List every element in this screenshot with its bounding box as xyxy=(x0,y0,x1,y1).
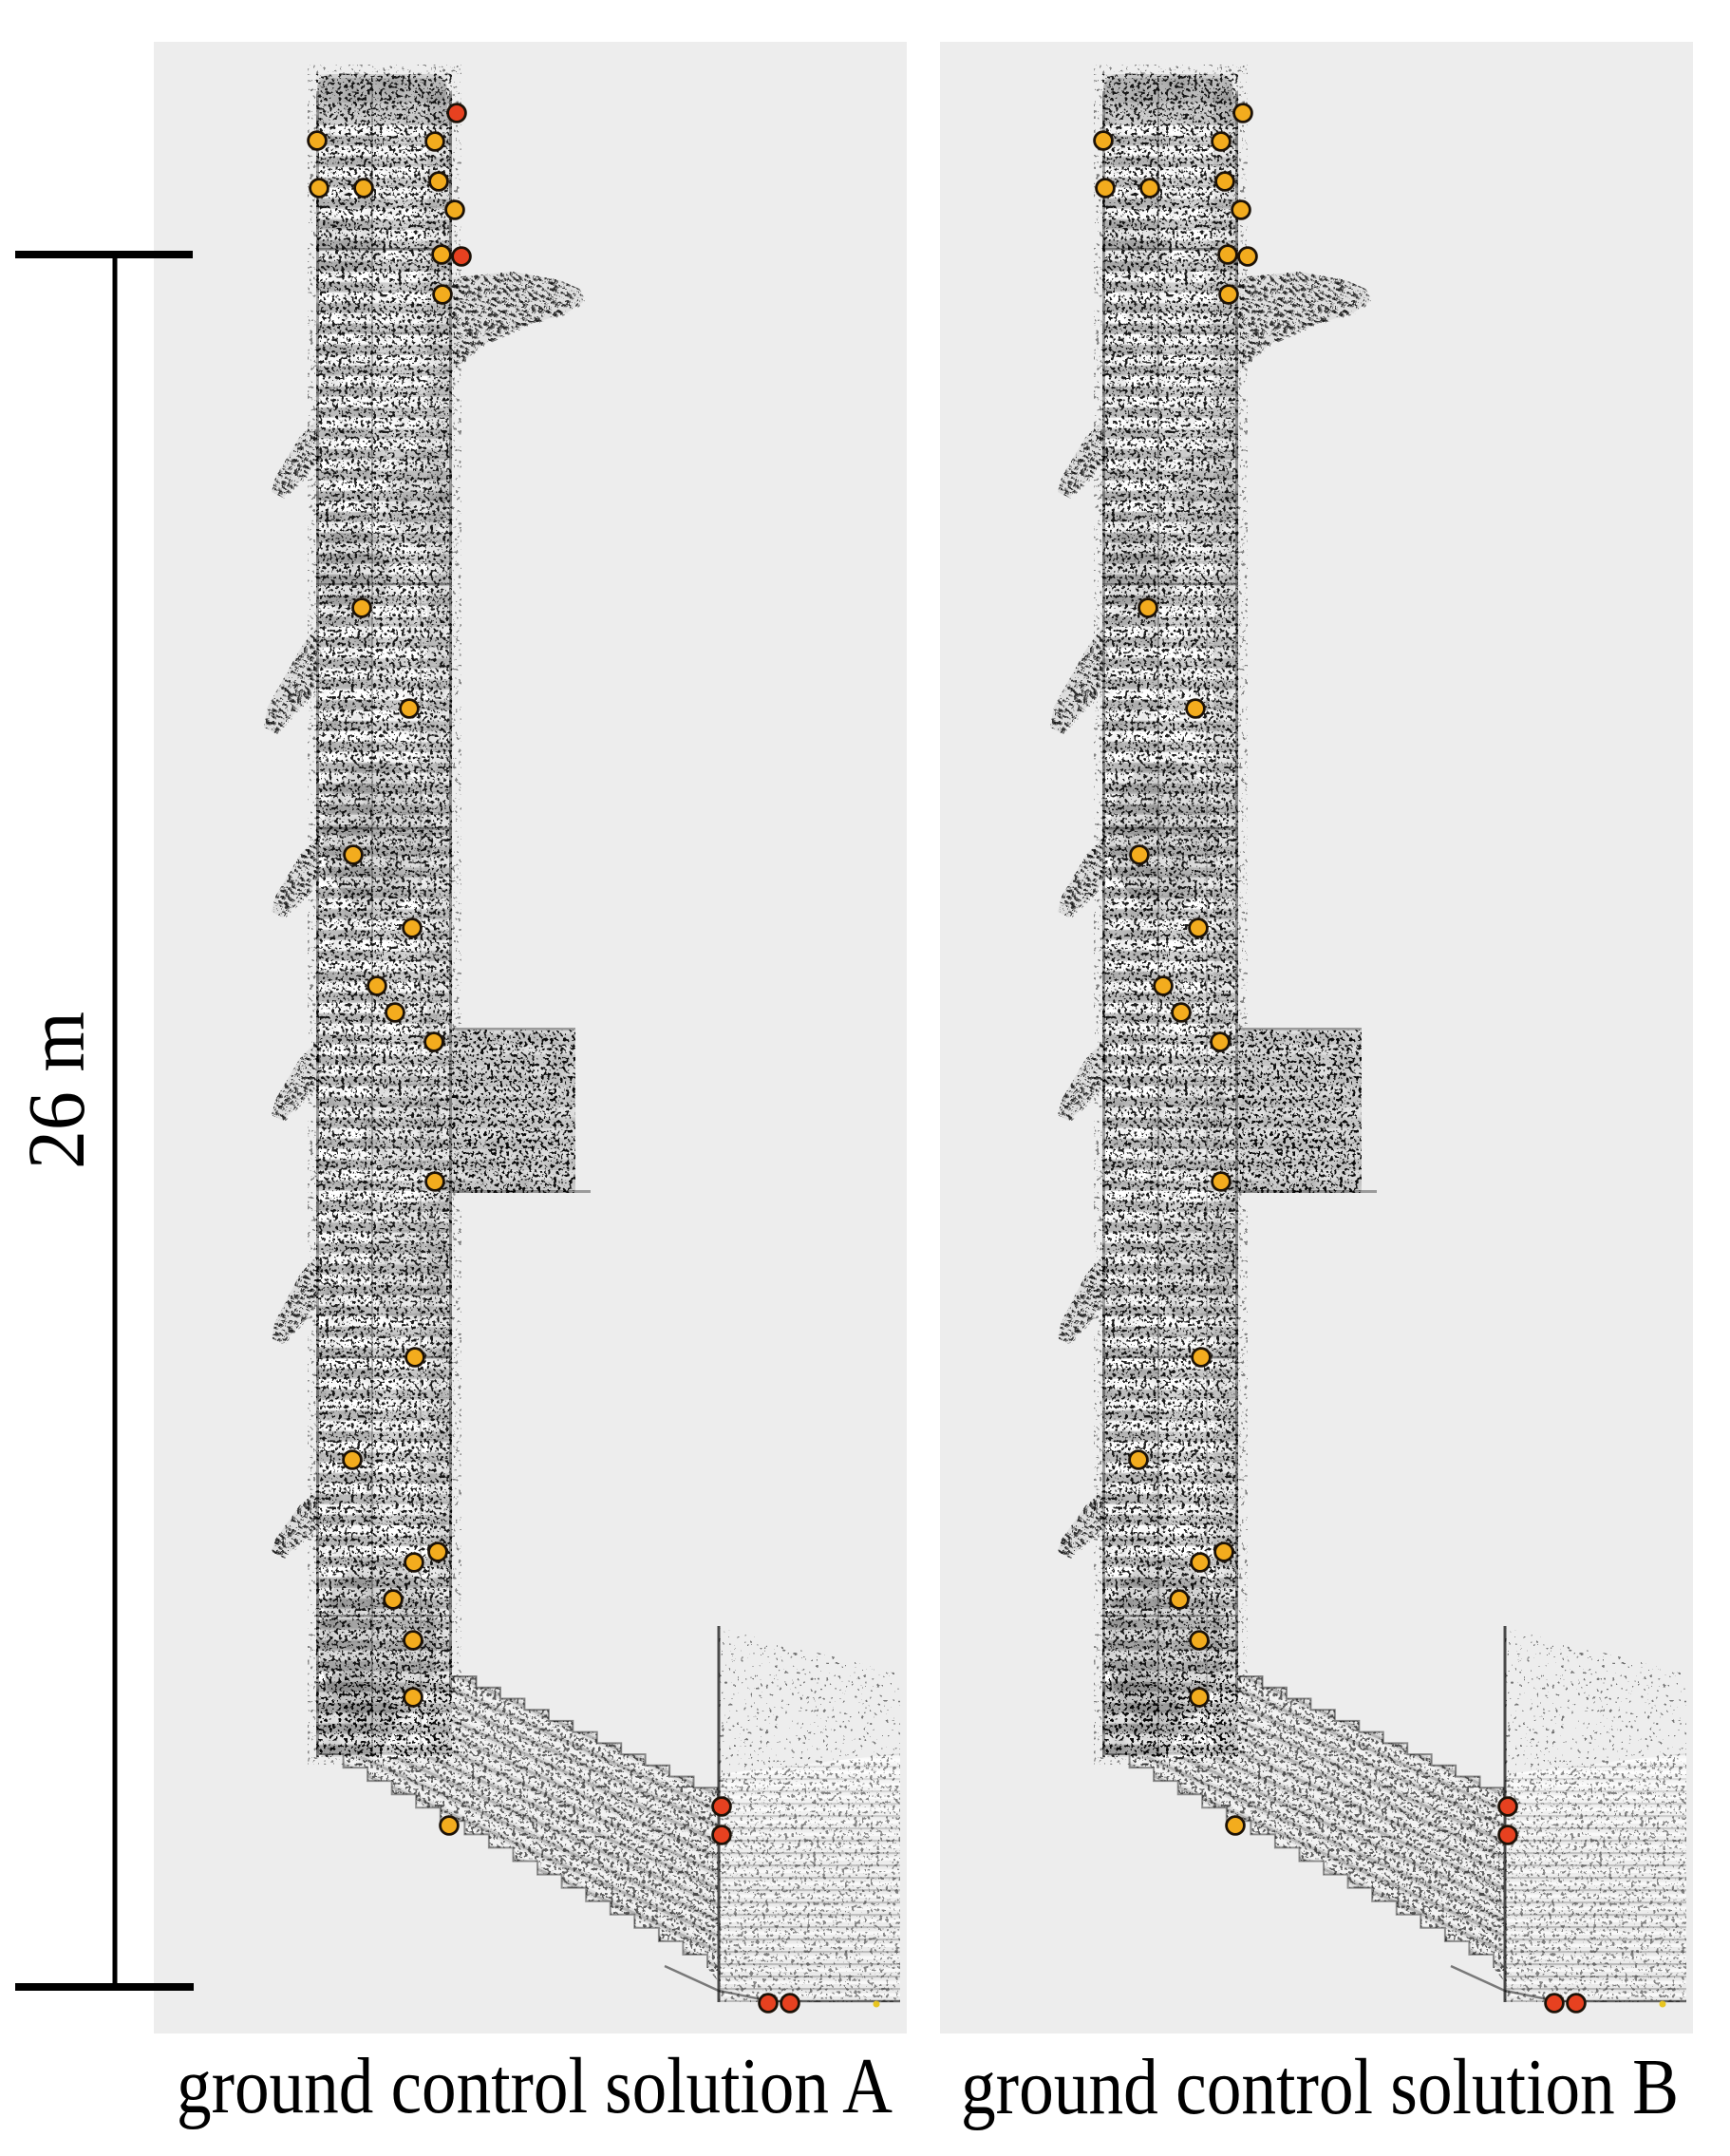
svg-text:26 m: 26 m xyxy=(10,1012,102,1169)
svg-text:ground control solution B: ground control solution B xyxy=(961,2043,1679,2131)
svg-text:ground control solution A: ground control solution A xyxy=(177,2042,893,2130)
